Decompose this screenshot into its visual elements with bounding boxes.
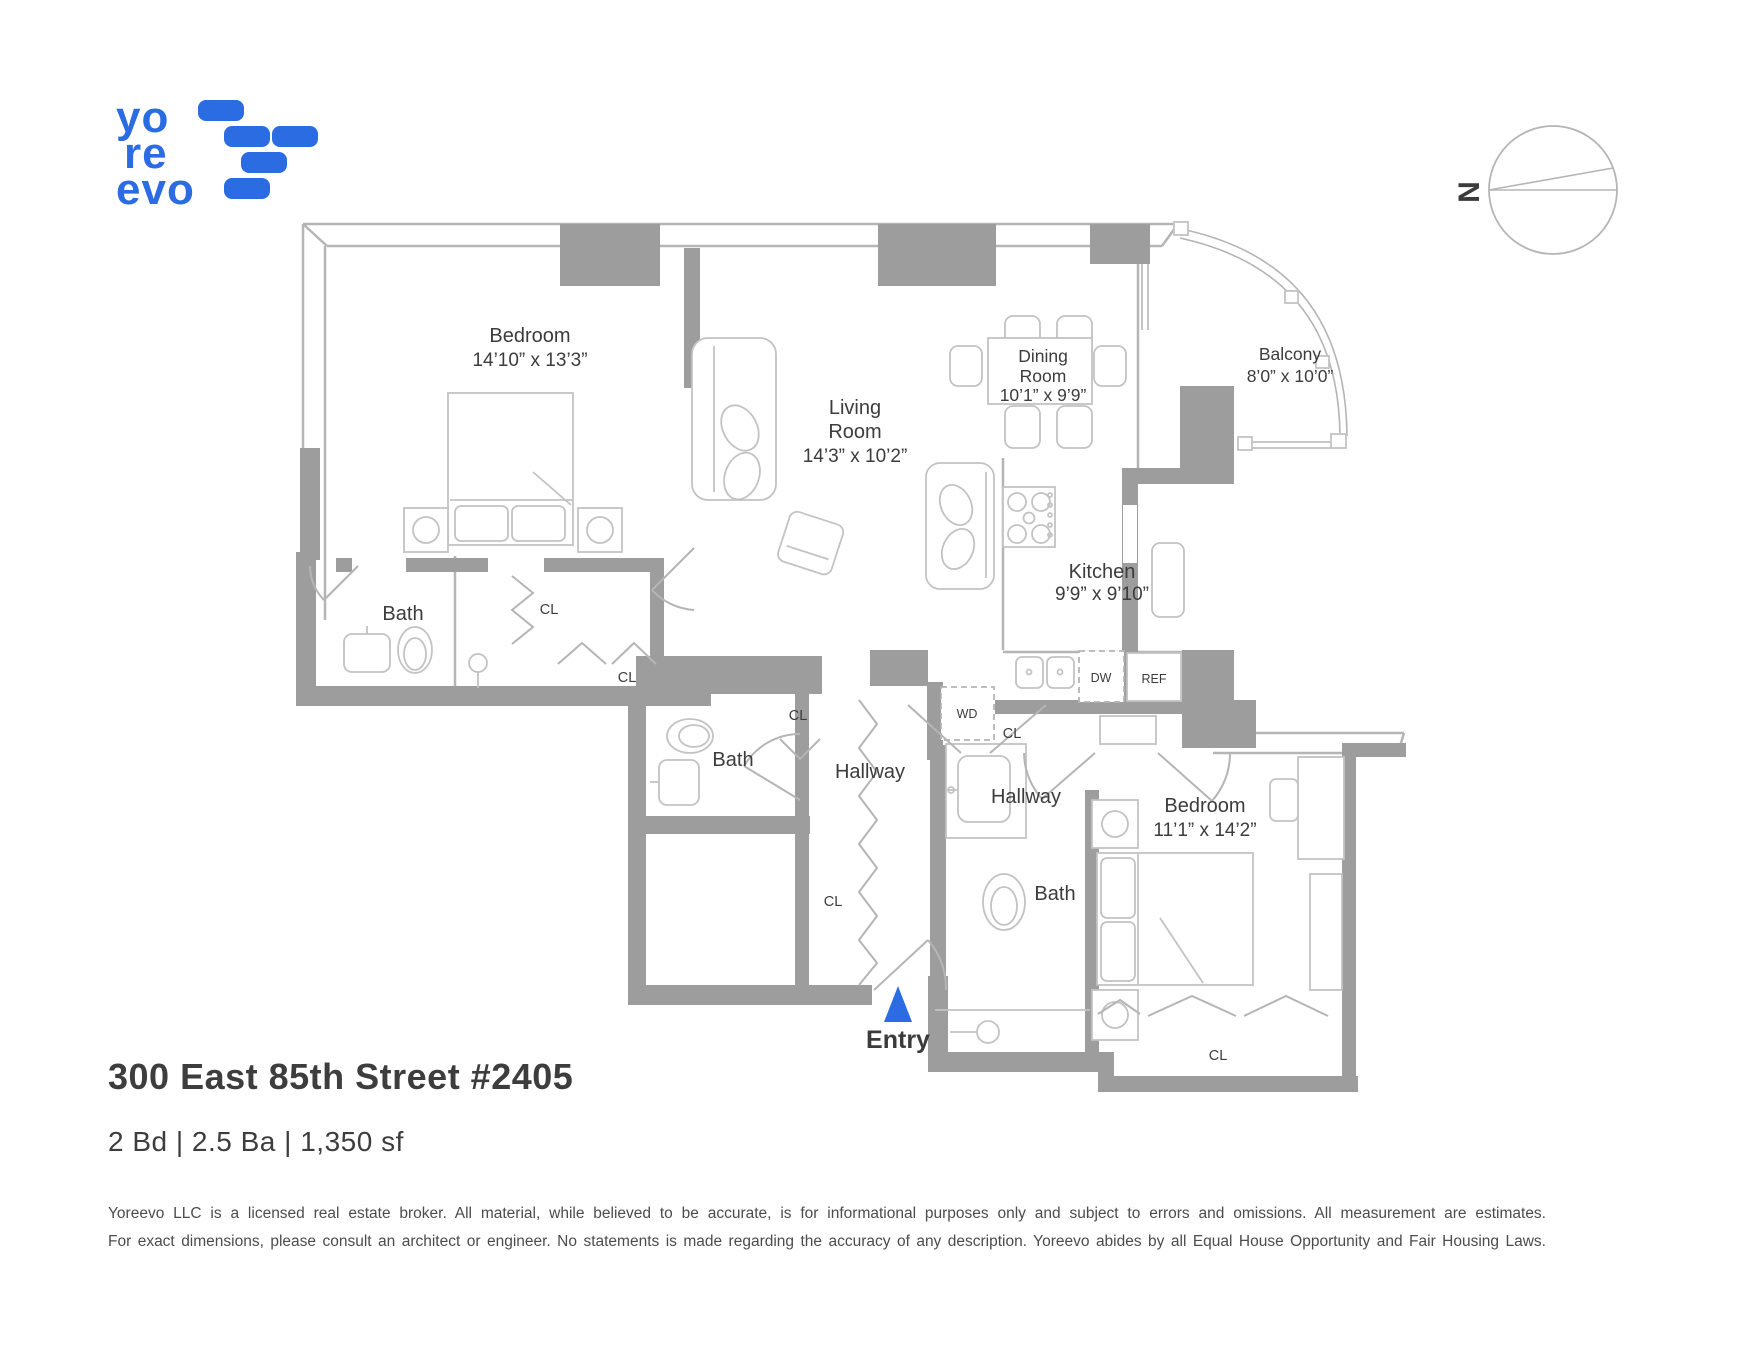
compass-icon: N [1453,126,1617,254]
refrigerator-label: REF [1142,672,1167,686]
bedroom-1-label: Bedroom [489,325,570,347]
hallway-1-label: Hallway [835,761,905,783]
balcony-label: Balcony [1259,344,1322,364]
compass-north-label: N [1453,181,1486,203]
dining-room-dims: 10’1” x 9’9” [1000,385,1087,405]
disclaimer-line-1: Yoreevo LLC is a licensed real estate br… [108,1200,1546,1228]
listing-address: 300 East 85th Street #2405 [108,1056,573,1098]
logo-bricks-icon [198,100,318,199]
bedroom-2-label: Bedroom [1164,795,1245,817]
bath-1-label: Bath [382,603,423,625]
bath-2-label: Bath [712,749,753,771]
closet-6-label: CL [1209,1048,1228,1064]
closet-4-label: CL [1003,726,1022,742]
entry-arrow-icon [884,986,912,1022]
kitchen-label: Kitchen [1069,561,1136,583]
listing-specs: 2 Bd | 2.5 Ba | 1,350 sf [108,1126,573,1158]
bath-2-fixtures [650,719,713,805]
dining-room-label-2: Room [1020,366,1067,386]
closet-1-label: CL [540,602,559,618]
desk [1298,757,1344,859]
washer-dryer-label: WD [957,707,978,721]
floor-plan-page: yo re evo N [0,0,1747,1349]
hallway-2-label: Hallway [991,786,1061,808]
entry-marker [884,986,912,1022]
living-room-dims: 14’3” x 10’2” [803,446,908,467]
bedroom-1-dims: 14’10” x 13’3” [472,350,587,371]
entry-label: Entry [866,1026,930,1054]
bath-1-fixtures [344,626,487,688]
living-room-label-2: Room [828,421,881,443]
bedroom-1-furniture [404,393,622,552]
title-block: 300 East 85th Street #2405 2 Bd | 2.5 Ba… [108,1056,573,1158]
disclaimer-line-2: For exact dimensions, please consult an … [108,1228,1546,1256]
balcony-dims: 8’0” x 10’0” [1247,366,1334,386]
closet-5-label: CL [824,894,843,910]
dishwasher-label: DW [1091,671,1112,685]
bedroom-2-dims: 11’1” x 14’2” [1153,820,1256,841]
disclaimer: Yoreevo LLC is a licensed real estate br… [108,1200,1546,1256]
yoreevo-logo: yo re evo [116,93,318,214]
logo-line-3: evo [116,165,195,214]
kitchen-dims: 9’9” x 9’10” [1055,584,1149,605]
closet-2-label: CL [618,670,637,686]
dresser [1310,874,1342,990]
closet-3-label: CL [789,708,808,724]
dining-room-label-1: Dining [1018,346,1068,366]
desk-chair [1270,779,1298,821]
bath-3-label: Bath [1034,883,1075,905]
living-room-label-1: Living [829,397,881,419]
